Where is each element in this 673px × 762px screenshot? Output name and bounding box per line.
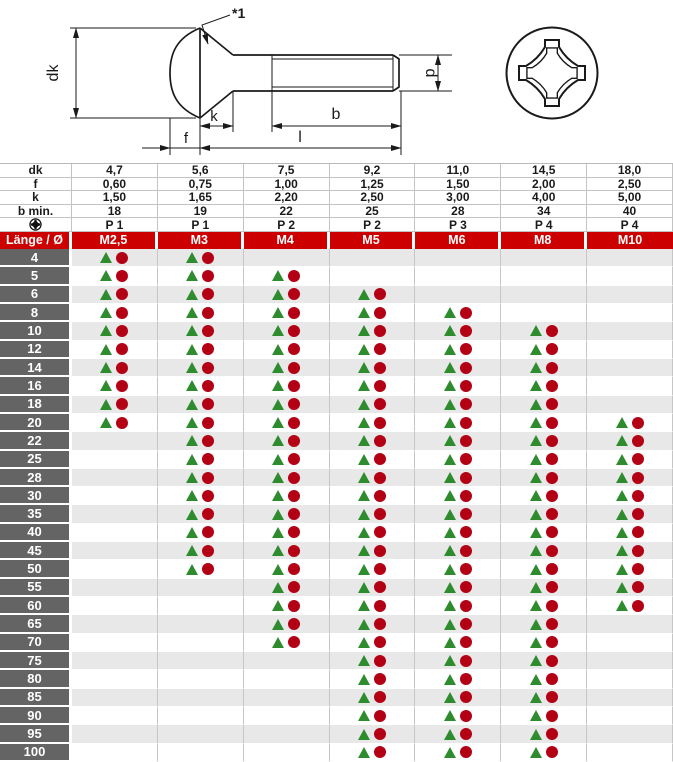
circle-marker	[288, 490, 300, 502]
circle-marker	[202, 472, 214, 484]
triangle-marker	[616, 509, 628, 520]
diameter-column-header: M5	[330, 232, 416, 249]
triangle-marker	[186, 472, 198, 483]
availability-cell	[330, 432, 416, 450]
availability-cell	[244, 359, 330, 377]
spec-value: P 2	[244, 218, 330, 232]
availability-cell	[415, 286, 501, 304]
triangle-marker	[616, 490, 628, 501]
availability-cell	[158, 652, 244, 670]
availability-cell	[587, 744, 673, 762]
triangle-marker	[444, 509, 456, 520]
availability-cell	[330, 487, 416, 505]
availability-cell	[415, 469, 501, 487]
circle-marker	[460, 417, 472, 429]
availability-cell	[158, 560, 244, 578]
availability-cell	[501, 542, 587, 560]
circle-marker	[546, 710, 558, 722]
availability-cell	[587, 615, 673, 633]
circle-marker	[116, 380, 128, 392]
circle-marker	[374, 673, 386, 685]
availability-cell	[587, 597, 673, 615]
availability-cell	[244, 744, 330, 762]
triangle-marker	[100, 325, 112, 336]
availability-cell	[244, 597, 330, 615]
availability-cell	[72, 725, 158, 743]
availability-cell	[158, 615, 244, 633]
circle-marker	[202, 398, 214, 410]
triangle-marker	[616, 454, 628, 465]
spec-row-label-k: k	[0, 191, 72, 205]
triangle-marker	[100, 362, 112, 373]
availability-cell	[501, 744, 587, 762]
triangle-marker	[530, 380, 542, 391]
length-row-label: 5	[0, 267, 72, 285]
circle-marker	[288, 307, 300, 319]
availability-cell	[158, 634, 244, 652]
triangle-marker	[358, 692, 370, 703]
triangle-marker	[444, 619, 456, 630]
triangle-marker	[272, 362, 284, 373]
availability-cell	[158, 286, 244, 304]
triangle-marker	[186, 252, 198, 263]
circle-marker	[374, 472, 386, 484]
availability-cell	[415, 267, 501, 285]
triangle-marker	[186, 380, 198, 391]
triangle-marker	[358, 417, 370, 428]
availability-cell	[501, 432, 587, 450]
triangle-marker	[444, 527, 456, 538]
circle-marker	[288, 453, 300, 465]
circle-marker	[546, 618, 558, 630]
availability-cell	[501, 689, 587, 707]
length-row-label: 16	[0, 377, 72, 395]
triangle-marker	[444, 344, 456, 355]
circle-marker	[460, 435, 472, 447]
triangle-marker	[444, 325, 456, 336]
availability-cell	[158, 542, 244, 560]
triangle-marker	[186, 509, 198, 520]
triangle-marker	[444, 710, 456, 721]
availability-cell	[72, 432, 158, 450]
circle-marker	[632, 545, 644, 557]
spec-value: P 1	[158, 218, 244, 232]
circle-marker	[202, 362, 214, 374]
circle-marker	[374, 288, 386, 300]
length-row-label: 100	[0, 744, 72, 762]
availability-cell	[501, 377, 587, 395]
availability-cell	[587, 505, 673, 523]
length-row-label: 50	[0, 560, 72, 578]
triangle-marker	[186, 490, 198, 501]
availability-cell	[244, 432, 330, 450]
availability-cell	[158, 377, 244, 395]
triangle-marker	[358, 509, 370, 520]
diameter-column-header: M3	[158, 232, 244, 249]
triangle-marker	[530, 600, 542, 611]
triangle-marker	[444, 472, 456, 483]
triangle-marker	[616, 435, 628, 446]
availability-cell	[244, 725, 330, 743]
availability-cell	[72, 396, 158, 414]
length-row-label: 14	[0, 359, 72, 377]
availability-cell	[72, 451, 158, 469]
spec-value: 40	[587, 205, 673, 219]
circle-marker	[288, 343, 300, 355]
triangle-marker	[358, 435, 370, 446]
circle-marker	[374, 636, 386, 648]
availability-cell	[415, 487, 501, 505]
triangle-marker	[272, 582, 284, 593]
spec-value: 14,5	[501, 164, 587, 178]
availability-cell	[501, 341, 587, 359]
availability-cell	[158, 597, 244, 615]
triangle-marker	[444, 692, 456, 703]
availability-cell	[587, 341, 673, 359]
availability-cell	[158, 744, 244, 762]
length-diameter-corner-label: Länge / Ø	[0, 232, 72, 249]
circle-marker	[546, 453, 558, 465]
availability-cell	[158, 670, 244, 688]
circle-marker	[546, 545, 558, 557]
spec-value: P 4	[501, 218, 587, 232]
triangle-marker	[444, 417, 456, 428]
triangle-marker	[530, 435, 542, 446]
availability-cell	[330, 524, 416, 542]
triangle-marker	[272, 472, 284, 483]
length-row-label: 35	[0, 505, 72, 523]
availability-cell	[244, 560, 330, 578]
triangle-marker	[272, 435, 284, 446]
triangle-marker	[444, 435, 456, 446]
spec-value: 28	[415, 205, 501, 219]
availability-cell	[330, 560, 416, 578]
triangle-marker	[358, 362, 370, 373]
availability-cell	[415, 359, 501, 377]
circle-marker	[374, 362, 386, 374]
availability-cell	[587, 377, 673, 395]
availability-cell	[158, 579, 244, 597]
note-label: *1	[232, 5, 245, 21]
availability-cell	[330, 267, 416, 285]
spec-value: 4,7	[72, 164, 158, 178]
triangle-marker	[358, 600, 370, 611]
circle-marker	[116, 307, 128, 319]
availability-cell	[587, 396, 673, 414]
spec-value: 5,00	[587, 191, 673, 205]
length-row-label: 6	[0, 286, 72, 304]
triangle-marker	[530, 509, 542, 520]
triangle-marker	[186, 417, 198, 428]
circle-marker	[288, 545, 300, 557]
circle-marker	[202, 343, 214, 355]
circle-marker	[202, 490, 214, 502]
availability-cell	[330, 341, 416, 359]
spec-value: 4,00	[501, 191, 587, 205]
circle-marker	[202, 563, 214, 575]
circle-marker	[374, 655, 386, 667]
availability-cell	[587, 304, 673, 322]
triangle-marker	[444, 655, 456, 666]
diameter-column-header: M6	[415, 232, 501, 249]
circle-marker	[202, 270, 214, 282]
length-row-label: 70	[0, 634, 72, 652]
circle-marker	[546, 746, 558, 758]
spec-value: P 1	[72, 218, 158, 232]
triangle-marker	[272, 417, 284, 428]
availability-cell	[72, 487, 158, 505]
circle-marker	[546, 490, 558, 502]
availability-cell	[72, 267, 158, 285]
lens-head-screw-drawing: *1 dk k f b l d	[0, 0, 673, 163]
availability-cell	[72, 560, 158, 578]
triangle-marker	[100, 380, 112, 391]
availability-cell	[587, 469, 673, 487]
circle-marker	[632, 600, 644, 612]
availability-cell	[244, 322, 330, 340]
availability-cell	[415, 560, 501, 578]
spec-value: 34	[501, 205, 587, 219]
availability-cell	[330, 414, 416, 432]
circle-marker	[546, 655, 558, 667]
availability-cell	[501, 359, 587, 377]
availability-cell	[415, 579, 501, 597]
f-dim-label: f	[184, 130, 189, 147]
triangle-marker	[444, 747, 456, 758]
triangle-marker	[272, 545, 284, 556]
availability-cell	[330, 469, 416, 487]
availability-cell	[244, 505, 330, 523]
triangle-marker	[272, 344, 284, 355]
availability-cell	[415, 451, 501, 469]
availability-cell	[158, 304, 244, 322]
triangle-marker	[530, 619, 542, 630]
triangle-marker	[186, 307, 198, 318]
triangle-marker	[358, 472, 370, 483]
circle-marker	[546, 636, 558, 648]
triangle-marker	[272, 325, 284, 336]
triangle-marker	[444, 545, 456, 556]
availability-cell	[415, 670, 501, 688]
spec-value: 2,50	[587, 178, 673, 192]
triangle-marker	[272, 564, 284, 575]
k-dim-label: k	[210, 108, 218, 125]
triangle-marker	[444, 564, 456, 575]
availability-cell	[501, 505, 587, 523]
availability-cell	[501, 524, 587, 542]
availability-cell	[158, 487, 244, 505]
availability-cell	[72, 634, 158, 652]
length-row-label: 95	[0, 725, 72, 743]
availability-cell	[330, 634, 416, 652]
availability-cell	[72, 414, 158, 432]
availability-cell	[244, 652, 330, 670]
triangle-marker	[272, 490, 284, 501]
availability-cell	[72, 359, 158, 377]
circle-marker	[202, 526, 214, 538]
circle-marker	[460, 453, 472, 465]
circle-marker	[546, 691, 558, 703]
circle-marker	[116, 270, 128, 282]
availability-cell	[415, 634, 501, 652]
availability-cell	[415, 341, 501, 359]
datasheet-page: *1 dk k f b l d dk4,75,67,59,211,014,518…	[0, 0, 673, 762]
d-dim-label: d	[422, 69, 439, 78]
circle-marker	[460, 600, 472, 612]
circle-marker	[546, 435, 558, 447]
triangle-marker	[186, 399, 198, 410]
availability-cell	[330, 652, 416, 670]
availability-cell	[72, 322, 158, 340]
spec-value: 3,00	[415, 191, 501, 205]
circle-marker	[202, 288, 214, 300]
availability-cell	[244, 707, 330, 725]
availability-cell	[330, 249, 416, 267]
triangle-marker	[100, 270, 112, 281]
triangle-marker	[530, 417, 542, 428]
availability-cell	[501, 560, 587, 578]
spec-row-label-phillips	[0, 218, 72, 232]
dk-dim-label: dk	[45, 64, 62, 82]
circle-marker	[374, 490, 386, 502]
triangle-marker	[358, 747, 370, 758]
triangle-marker	[358, 380, 370, 391]
circle-marker	[288, 472, 300, 484]
availability-cell	[587, 359, 673, 377]
circle-marker	[632, 581, 644, 593]
circle-marker	[288, 325, 300, 337]
triangle-marker	[272, 527, 284, 538]
triangle-marker	[186, 270, 198, 281]
triangle-marker	[530, 692, 542, 703]
spec-value: P 2	[330, 218, 416, 232]
triangle-marker	[100, 399, 112, 410]
availability-cell	[244, 267, 330, 285]
triangle-marker	[530, 582, 542, 593]
spec-value: P 3	[415, 218, 501, 232]
availability-cell	[587, 432, 673, 450]
availability-cell	[158, 451, 244, 469]
availability-cell	[330, 689, 416, 707]
circle-marker	[546, 325, 558, 337]
triangle-marker	[100, 307, 112, 318]
circle-marker	[116, 325, 128, 337]
triangle-marker	[186, 344, 198, 355]
availability-cell	[158, 414, 244, 432]
availability-cell	[158, 396, 244, 414]
circle-marker	[546, 362, 558, 374]
availability-cell	[415, 396, 501, 414]
circle-marker	[546, 581, 558, 593]
circle-marker	[116, 252, 128, 264]
availability-cell	[72, 652, 158, 670]
circle-marker	[288, 288, 300, 300]
availability-cell	[244, 377, 330, 395]
triangle-marker	[272, 307, 284, 318]
availability-cell	[72, 689, 158, 707]
spec-value: 19	[158, 205, 244, 219]
triangle-marker	[530, 454, 542, 465]
availability-cell	[587, 524, 673, 542]
triangle-marker	[616, 582, 628, 593]
availability-cell	[158, 249, 244, 267]
availability-cell	[415, 432, 501, 450]
length-row-label: 60	[0, 597, 72, 615]
length-row-label: 80	[0, 670, 72, 688]
triangle-marker	[358, 674, 370, 685]
length-row-label: 65	[0, 615, 72, 633]
circle-marker	[116, 343, 128, 355]
circle-marker	[116, 288, 128, 300]
circle-marker	[460, 472, 472, 484]
circle-marker	[632, 490, 644, 502]
triangle-marker	[444, 399, 456, 410]
availability-cell	[501, 615, 587, 633]
availability-cell	[415, 322, 501, 340]
diameter-column-header: M2,5	[72, 232, 158, 249]
circle-marker	[288, 600, 300, 612]
circle-marker	[202, 453, 214, 465]
availability-cell	[244, 615, 330, 633]
availability-cell	[501, 414, 587, 432]
circle-marker	[202, 252, 214, 264]
l-dim-label: l	[298, 129, 302, 146]
circle-marker	[546, 343, 558, 355]
circle-marker	[374, 508, 386, 520]
circle-marker	[546, 563, 558, 575]
availability-cell	[158, 707, 244, 725]
circle-marker	[546, 398, 558, 410]
availability-cell	[72, 304, 158, 322]
availability-cell	[158, 267, 244, 285]
triangle-marker	[530, 545, 542, 556]
triangle-marker	[530, 399, 542, 410]
circle-marker	[374, 380, 386, 392]
circle-marker	[632, 508, 644, 520]
circle-marker	[546, 526, 558, 538]
circle-marker	[460, 343, 472, 355]
availability-cell	[501, 322, 587, 340]
availability-cell	[587, 707, 673, 725]
availability-cell	[72, 469, 158, 487]
circle-marker	[374, 417, 386, 429]
triangle-marker	[444, 490, 456, 501]
circle-marker	[202, 380, 214, 392]
availability-cell	[244, 634, 330, 652]
availability-cell	[501, 469, 587, 487]
technical-drawing: *1 dk k f b l d	[0, 0, 673, 163]
circle-marker	[288, 563, 300, 575]
availability-cell	[501, 670, 587, 688]
triangle-marker	[100, 252, 112, 263]
triangle-marker	[530, 490, 542, 501]
availability-cell	[501, 597, 587, 615]
spec-value: 0,75	[158, 178, 244, 192]
circle-marker	[460, 636, 472, 648]
triangle-marker	[186, 325, 198, 336]
circle-marker	[632, 453, 644, 465]
circle-marker	[116, 417, 128, 429]
triangle-marker	[616, 472, 628, 483]
triangle-marker	[358, 289, 370, 300]
triangle-marker	[272, 619, 284, 630]
availability-cell	[415, 615, 501, 633]
availability-cell	[244, 524, 330, 542]
triangle-marker	[444, 362, 456, 373]
triangle-marker	[358, 399, 370, 410]
availability-cell	[72, 524, 158, 542]
triangle-marker	[530, 655, 542, 666]
